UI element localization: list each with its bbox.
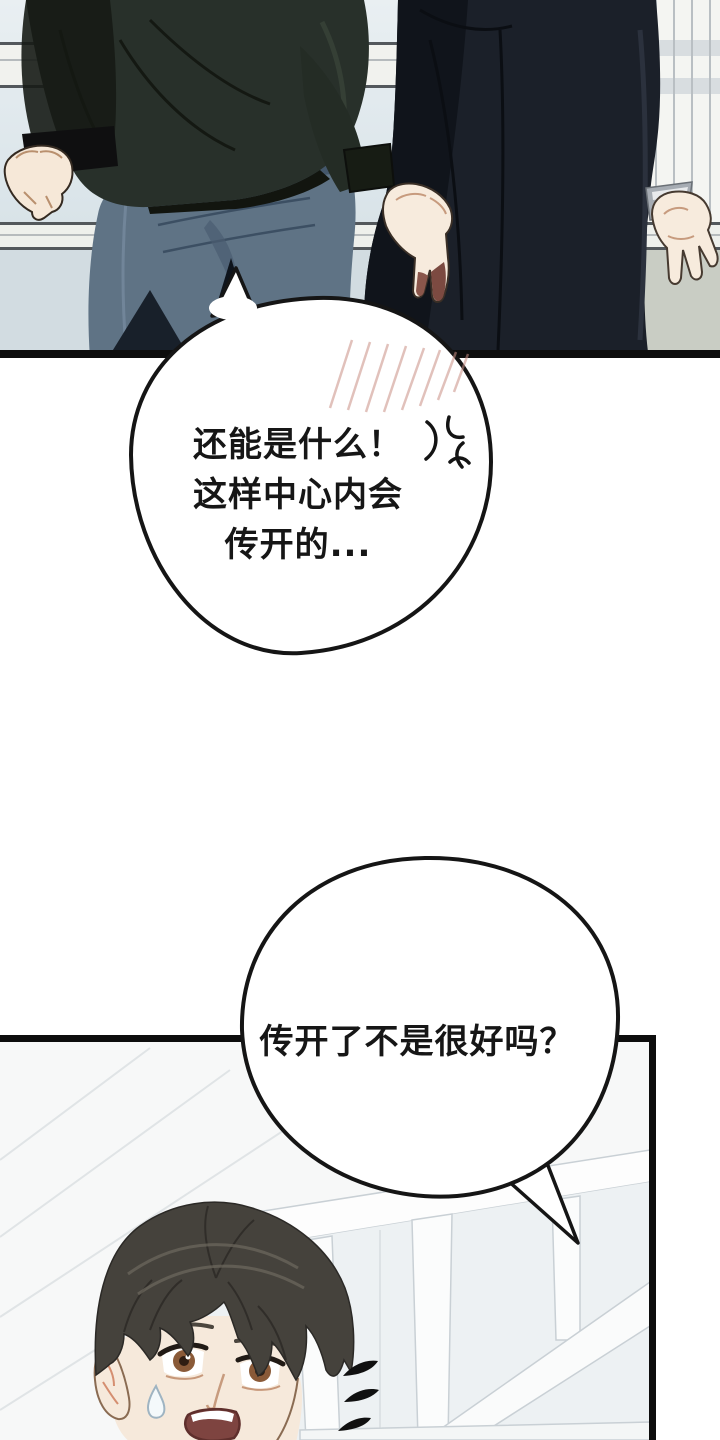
bubble-1-line-1: 还能是什么！ (128, 420, 468, 470)
bubble-1-text: 还能是什么！ 这样中心内会 传开的... (128, 420, 468, 570)
bubble-1-line-3: 传开的... (128, 520, 468, 570)
bubble-2-text: 传开了不是很好吗？ (232, 1022, 602, 1062)
comic-page: 还能是什么！ 这样中心内会 传开的... (0, 0, 720, 1440)
bubble-2-line-1: 传开了不是很好吗？ (232, 1022, 602, 1062)
cuff-center (344, 144, 394, 192)
mouth (185, 1409, 239, 1440)
panel-border-bottom-vertical (649, 1035, 656, 1440)
bubble-1-line-2: 这样中心内会 (128, 470, 468, 520)
